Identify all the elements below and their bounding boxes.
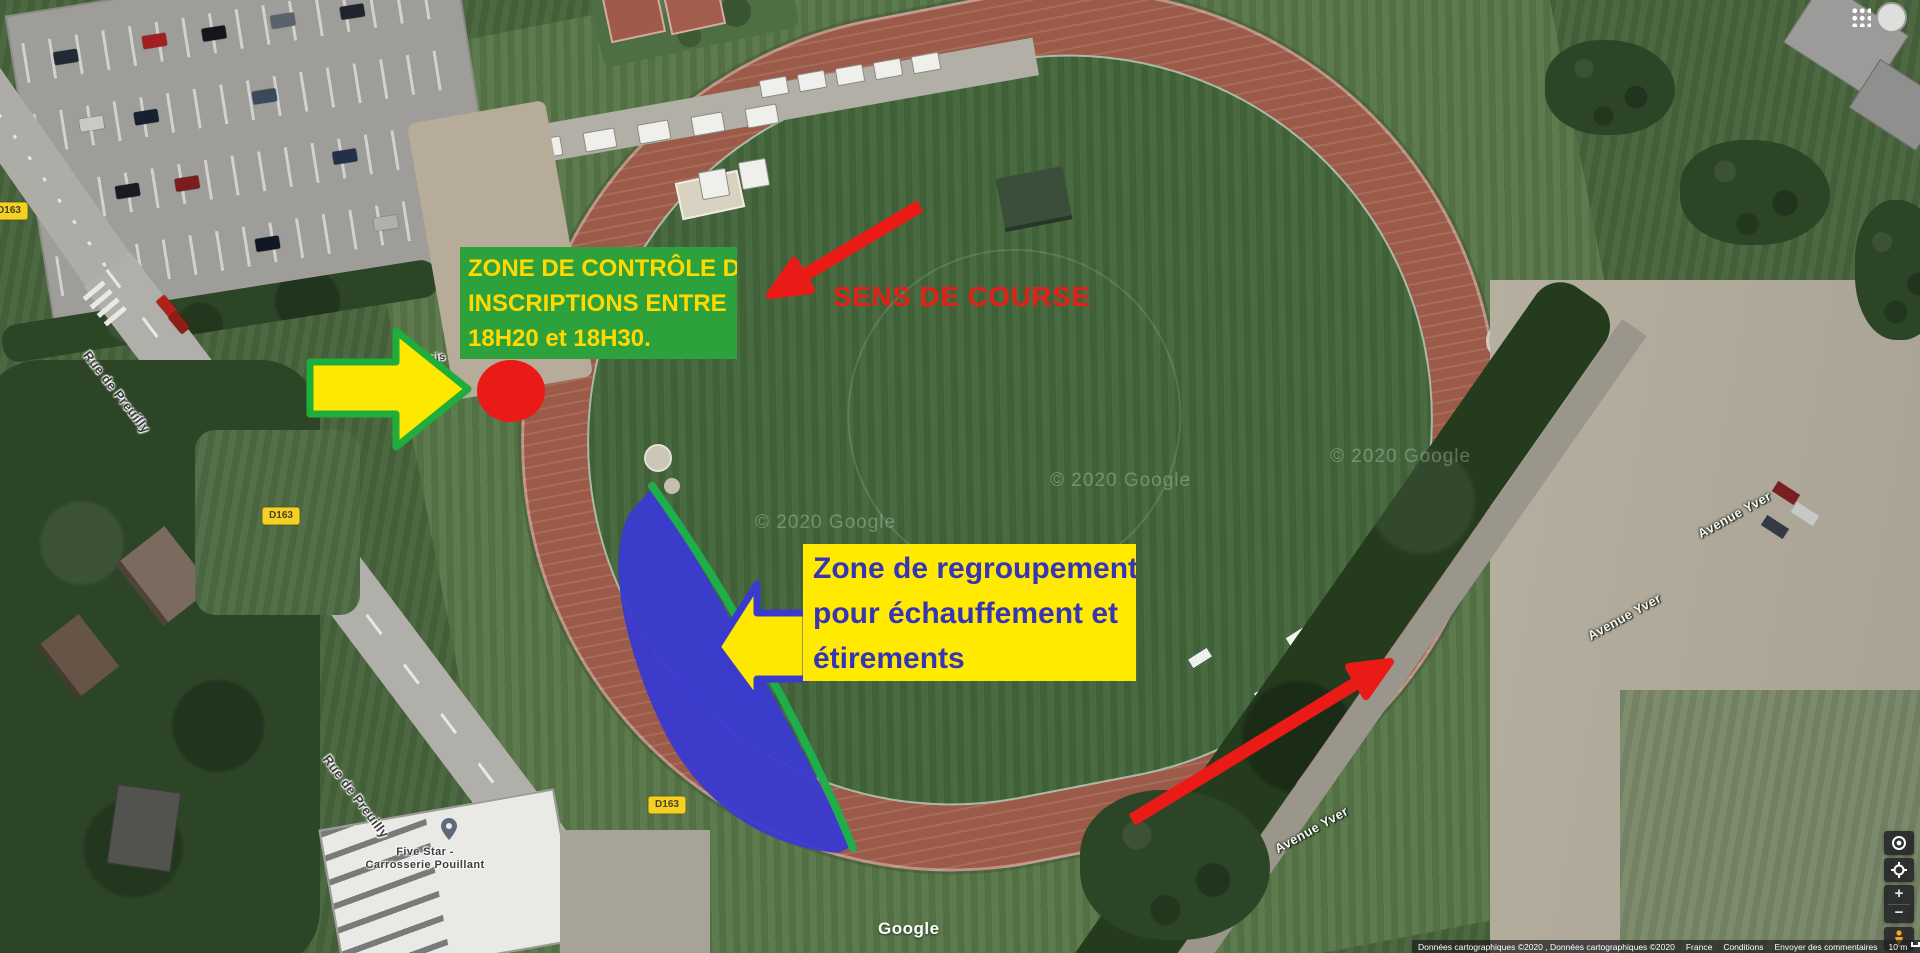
warmup-zone-box: Zone de regroupement pour échauffement e…: [803, 544, 1136, 681]
poi-label-line1: Five Star -: [355, 846, 495, 859]
scale-label: 10 m: [1888, 942, 1907, 952]
tree-cluster: [1545, 40, 1675, 135]
compass-icon: [1891, 835, 1907, 851]
race-direction-label: SENS DE COURSE: [833, 281, 1091, 313]
apps-grid-icon[interactable]: [1850, 6, 1871, 27]
registration-zone-line1: ZONE DE CONTRÔLE DES: [468, 251, 737, 286]
field-watermark: © 2020 Google: [1050, 470, 1191, 492]
registration-zone-box: ZONE DE CONTRÔLE DES INSCRIPTIONS ENTRE …: [460, 247, 737, 359]
camper-van: [698, 168, 730, 200]
house: [107, 784, 182, 872]
attribution-link-conditions[interactable]: Conditions: [1723, 942, 1763, 952]
my-location-button[interactable]: [1884, 858, 1914, 882]
map-canvas[interactable]: © 2020 Google © 2020 Google © 2020 Googl…: [0, 0, 1920, 953]
road-shield-d163: D163: [262, 507, 300, 525]
poi-pin-icon[interactable]: [441, 818, 457, 840]
field-watermark: © 2020 Google: [755, 512, 896, 534]
poi-label-line2: Carrosserie Pouillant: [355, 859, 495, 872]
water-tank: [1876, 2, 1907, 33]
google-logo: Google: [878, 919, 940, 939]
road-shield-d163: D163: [0, 202, 28, 220]
warmup-zone-line1: Zone de regroupement: [813, 546, 1136, 591]
tree-cluster: [1680, 140, 1830, 245]
field-bottom-right: [1620, 690, 1920, 953]
throwing-circle: [644, 444, 672, 472]
zoom-panel: + −: [1884, 885, 1914, 923]
poi-label[interactable]: Five Star - Carrosserie Pouillant: [355, 846, 495, 872]
attribution-copyright: Données cartographiques ©2020 , Données …: [1418, 942, 1675, 952]
scale-bar: [1911, 942, 1920, 947]
throwing-circle: [664, 478, 680, 494]
compass-button[interactable]: [1884, 831, 1914, 855]
registration-zone-line3: 18H20 et 18H30.: [468, 321, 737, 356]
my-location-icon: [1891, 862, 1907, 878]
attribution-bar: Données cartographiques ©2020 , Données …: [1412, 940, 1920, 953]
warmup-zone-line2: pour échauffement et: [813, 591, 1136, 636]
zoom-in-button[interactable]: +: [1895, 885, 1904, 904]
field-watermark: © 2020 Google: [1330, 446, 1471, 468]
zoom-out-button[interactable]: −: [1888, 904, 1910, 924]
warmup-zone-line3: étirements: [813, 636, 1136, 681]
yard: [560, 830, 710, 953]
attribution-link-feedback[interactable]: Envoyer des commentaires: [1774, 942, 1877, 952]
camper-van: [738, 158, 770, 190]
tree-cluster: [1855, 200, 1920, 340]
registration-zone-line2: INSCRIPTIONS ENTRE: [468, 286, 737, 321]
attribution-link-france[interactable]: France: [1686, 942, 1712, 952]
road-shield-d163: D163: [648, 796, 686, 814]
